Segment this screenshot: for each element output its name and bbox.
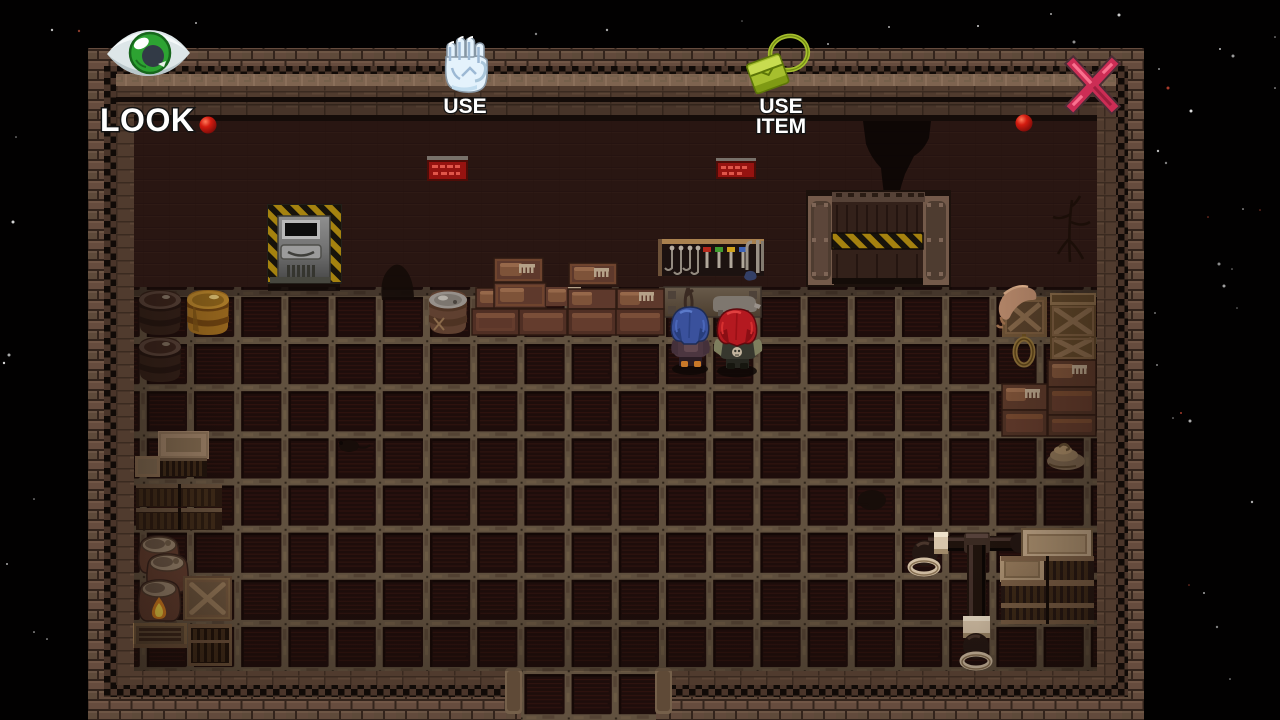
svg-text:LOOK: LOOK <box>100 102 194 138</box>
svg-text:ITEM: ITEM <box>756 115 806 138</box>
svg-text:USE: USE <box>443 95 486 118</box>
